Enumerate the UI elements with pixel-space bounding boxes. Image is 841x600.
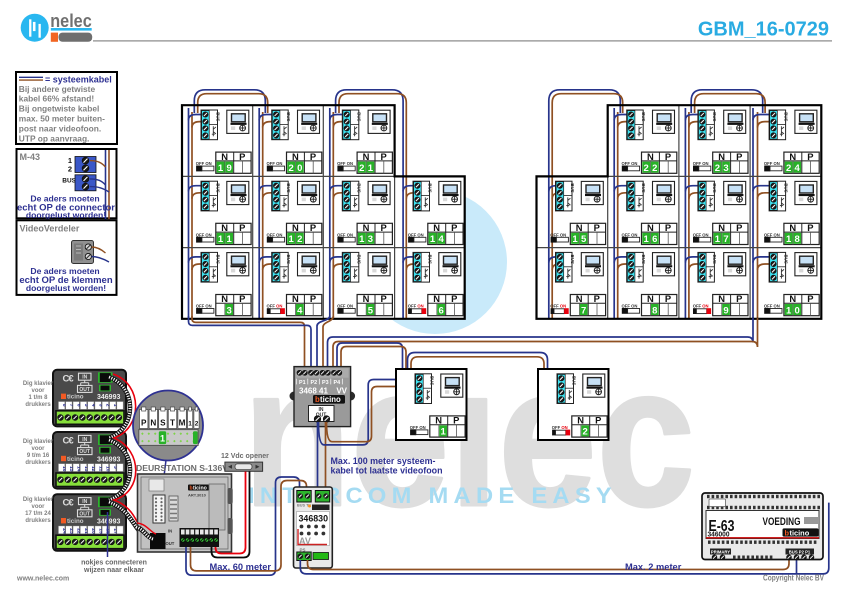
svg-text:OUT: OUT	[79, 387, 90, 393]
svg-text:Bij andere getwiste: Bij andere getwiste	[19, 84, 96, 94]
svg-text:ON: ON	[276, 304, 282, 309]
svg-text:P: P	[453, 415, 459, 426]
svg-text:nokjes connecteren: nokjes connecteren	[81, 560, 147, 567]
svg-text:9: 9	[723, 305, 728, 316]
svg-text:N: N	[433, 222, 440, 233]
svg-text:ON: ON	[205, 161, 211, 166]
svg-text:BUS: BUS	[641, 255, 646, 264]
svg-text:ticino: ticino	[67, 394, 84, 401]
svg-text:1: 1	[440, 427, 446, 438]
svg-text:GBM_16-0729: GBM_16-0729	[698, 19, 829, 41]
svg-text:ticino: ticino	[320, 395, 341, 404]
svg-text:Dig klavier: Dig klavier	[23, 497, 54, 503]
svg-text:N: N	[433, 293, 440, 304]
svg-text:1: 1	[188, 421, 192, 428]
svg-text:ON: ON	[702, 232, 708, 237]
svg-text:N: N	[221, 222, 228, 233]
svg-text:N: N	[718, 151, 725, 162]
svg-text:N: N	[363, 222, 370, 233]
svg-text:OFF: OFF	[267, 161, 276, 166]
svg-text:Dig klavier: Dig klavier	[23, 439, 54, 445]
svg-text:VideoVerdeler: VideoVerdeler	[20, 224, 80, 234]
svg-text:N: N	[292, 293, 299, 304]
svg-text:4: 4	[795, 163, 801, 174]
svg-text:OFF: OFF	[337, 232, 346, 237]
svg-text:BUS: BUS	[712, 183, 717, 192]
svg-text:P: P	[807, 222, 813, 233]
svg-text:1: 1	[644, 234, 650, 245]
svg-text:OFF: OFF	[622, 304, 631, 309]
svg-text:Max. 100 meter systeem-: Max. 100 meter systeem-	[331, 456, 436, 466]
svg-text:1: 1	[786, 234, 792, 245]
svg-text:P: P	[141, 419, 147, 428]
svg-text:0: 0	[297, 163, 302, 174]
svg-text:OFF: OFF	[550, 304, 559, 309]
svg-text:8: 8	[795, 234, 800, 245]
svg-text:P1: P1	[299, 380, 306, 386]
svg-text:BUS: BUS	[286, 255, 291, 264]
svg-text:N: N	[577, 415, 584, 426]
svg-text:2: 2	[359, 163, 364, 174]
svg-text:BUS: BUS	[641, 112, 646, 121]
svg-text:3: 3	[723, 163, 728, 174]
svg-text:ON: ON	[631, 232, 637, 237]
svg-text:P: P	[807, 151, 813, 162]
svg-text:346830: 346830	[299, 514, 329, 525]
svg-text:P: P	[239, 293, 245, 304]
svg-text:9: 9	[226, 163, 231, 174]
svg-text:wijzen naar elkaar: wijzen naar elkaar	[83, 567, 144, 574]
svg-text:OFF: OFF	[550, 232, 559, 237]
svg-text:4: 4	[438, 234, 444, 245]
svg-text:346993: 346993	[97, 519, 120, 526]
svg-text:N: N	[647, 151, 654, 162]
svg-text:P: P	[736, 151, 742, 162]
svg-text:N: N	[221, 151, 228, 162]
svg-text:P: P	[594, 293, 600, 304]
svg-text:ON: ON	[774, 304, 780, 309]
svg-text:1: 1	[572, 234, 578, 245]
svg-text:P: P	[380, 151, 386, 162]
svg-text:BUS: BUS	[215, 112, 220, 121]
svg-text:P: P	[239, 151, 245, 162]
svg-text:N: N	[789, 293, 796, 304]
svg-text:6: 6	[438, 305, 443, 316]
svg-text:OFF: OFF	[196, 232, 205, 237]
svg-text:17 t/m 24: 17 t/m 24	[25, 511, 51, 517]
svg-text:Max. 60 meter: Max. 60 meter	[210, 562, 272, 572]
svg-text:N: N	[150, 419, 156, 428]
svg-text:OFF: OFF	[196, 161, 205, 166]
svg-text:BUS: BUS	[783, 112, 788, 121]
svg-text:ON: ON	[774, 232, 780, 237]
svg-text:OFF: OFF	[267, 232, 276, 237]
svg-text:BUS: BUS	[429, 376, 434, 385]
svg-text:ON: ON	[276, 161, 282, 166]
svg-text:OFF: OFF	[552, 425, 561, 430]
svg-text:OFF: OFF	[196, 304, 205, 309]
svg-text:OFF: OFF	[410, 425, 419, 430]
svg-text:N: N	[292, 151, 299, 162]
svg-text:ticino: ticino	[193, 486, 207, 492]
svg-text:ON: ON	[774, 161, 780, 166]
svg-text:ON: ON	[702, 304, 708, 309]
svg-text:OFF: OFF	[337, 304, 346, 309]
svg-text:N: N	[576, 293, 583, 304]
svg-text:P: P	[665, 222, 671, 233]
svg-text:P: P	[310, 293, 316, 304]
svg-text:1: 1	[715, 234, 721, 245]
svg-text:N: N	[363, 151, 370, 162]
svg-text:P: P	[807, 293, 813, 304]
svg-text:max. 50 meter buiten-: max. 50 meter buiten-	[19, 114, 105, 124]
svg-text:VOEDING: VOEDING	[763, 516, 801, 528]
svg-text:BUS: BUS	[641, 183, 646, 192]
svg-text:BUS P2 P1: BUS P2 P1	[789, 549, 811, 554]
svg-text:ON: ON	[205, 232, 211, 237]
svg-text:1: 1	[218, 163, 224, 174]
svg-text:OUT: OUT	[79, 511, 90, 517]
svg-text:2: 2	[786, 163, 791, 174]
svg-text:OUT: OUT	[166, 541, 175, 546]
svg-text:OFF: OFF	[693, 232, 702, 237]
svg-text:P3: P3	[322, 380, 329, 386]
svg-text:C€: C€	[63, 498, 75, 509]
svg-text:OFF: OFF	[764, 304, 773, 309]
svg-text:2: 2	[68, 165, 72, 174]
svg-text:N: N	[363, 293, 370, 304]
svg-text:P: P	[451, 222, 457, 233]
svg-text:post naar videofoon.: post naar videofoon.	[19, 123, 101, 133]
svg-text:UTP op aanvraag.: UTP op aanvraag.	[19, 133, 90, 143]
svg-text:8: 8	[652, 305, 657, 316]
svg-text:P: P	[736, 222, 742, 233]
svg-text:BUS: BUS	[427, 183, 432, 192]
svg-text:1: 1	[430, 234, 436, 245]
svg-text:M: M	[179, 419, 186, 428]
svg-text:P4: P4	[334, 380, 341, 386]
svg-text:ON: ON	[561, 425, 567, 430]
svg-text:7: 7	[723, 234, 728, 245]
svg-text:ticino: ticino	[67, 456, 84, 463]
svg-text:P: P	[736, 293, 742, 304]
svg-text:5: 5	[581, 234, 587, 245]
svg-text:AV: AV	[299, 536, 311, 546]
svg-text:Copyright Nelec BV: Copyright Nelec BV	[763, 574, 825, 583]
svg-text:P: P	[310, 151, 316, 162]
svg-text:ON: ON	[702, 161, 708, 166]
svg-text:ticino: ticino	[790, 528, 810, 537]
svg-text:BUS: BUS	[570, 183, 575, 192]
svg-text:5: 5	[368, 305, 374, 316]
svg-text:BUS: BUS	[286, 183, 291, 192]
svg-text:N: N	[576, 222, 583, 233]
svg-text:P: P	[665, 151, 671, 162]
svg-text:2: 2	[652, 163, 657, 174]
svg-text:BUS: BUS	[570, 255, 575, 264]
svg-text:6: 6	[652, 234, 657, 245]
svg-text:1: 1	[289, 234, 295, 245]
svg-text:OFF: OFF	[408, 304, 417, 309]
svg-text:N: N	[789, 151, 796, 162]
svg-text:2: 2	[582, 427, 587, 438]
svg-text:P: P	[451, 293, 457, 304]
svg-text:ART.3010: ART.3010	[188, 493, 207, 498]
svg-text:BUS: BUS	[357, 255, 362, 264]
svg-text:P: P	[239, 222, 245, 233]
svg-text:N: N	[718, 222, 725, 233]
svg-text:ON: ON	[417, 232, 423, 237]
svg-text:1: 1	[226, 234, 232, 245]
svg-text:ON: ON	[417, 304, 423, 309]
svg-text:BUS: BUS	[357, 112, 362, 121]
svg-text:N: N	[435, 415, 442, 426]
svg-text:N: N	[718, 293, 725, 304]
svg-text:2: 2	[644, 163, 649, 174]
svg-text:IN: IN	[82, 375, 87, 381]
svg-text:voor: voor	[31, 388, 45, 394]
svg-text:C€: C€	[63, 373, 75, 384]
svg-text:kabel 66% afstand!: kabel 66% afstand!	[19, 94, 94, 104]
svg-text:OFF: OFF	[622, 161, 631, 166]
svg-text:2: 2	[715, 163, 720, 174]
svg-text:OFF: OFF	[267, 304, 276, 309]
svg-text:BUS: BUS	[712, 255, 717, 264]
svg-text:2: 2	[297, 234, 302, 245]
svg-text:1: 1	[786, 305, 792, 316]
svg-text:ON: ON	[347, 232, 353, 237]
svg-text:N: N	[647, 293, 654, 304]
svg-text:P: P	[380, 293, 386, 304]
svg-text:ticino: ticino	[67, 518, 84, 525]
svg-text:www.nelec.com: www.nelec.com	[16, 576, 69, 583]
svg-text:BUS: BUS	[783, 255, 788, 264]
svg-text:N: N	[789, 222, 796, 233]
svg-text:3: 3	[226, 305, 231, 316]
svg-text:OUT: OUT	[79, 449, 90, 455]
svg-text:P: P	[665, 293, 671, 304]
svg-text:Bij ongetwiste kabel: Bij ongetwiste kabel	[19, 104, 100, 114]
svg-text:ON: ON	[631, 304, 637, 309]
svg-text:M-43: M-43	[20, 152, 41, 162]
svg-text:ON: ON	[560, 232, 566, 237]
svg-text:346993: 346993	[97, 394, 120, 401]
svg-text:2: 2	[289, 163, 294, 174]
svg-text:drukkers: drukkers	[25, 402, 51, 408]
svg-text:P: P	[595, 415, 601, 426]
svg-text:ON: ON	[276, 232, 282, 237]
svg-text:doorgelust worden!: doorgelust worden!	[26, 283, 106, 293]
svg-text:doorgelust worden!: doorgelust worden!	[26, 210, 106, 220]
svg-text:BUS: BUS	[215, 255, 220, 264]
svg-text:1 t/m 8: 1 t/m 8	[28, 395, 48, 401]
svg-text:OFF: OFF	[337, 161, 346, 166]
svg-text:2: 2	[195, 421, 199, 428]
svg-text:S: S	[160, 419, 166, 428]
svg-text:IN: IN	[168, 529, 172, 534]
svg-text:346000: 346000	[708, 529, 730, 538]
svg-text:4: 4	[297, 305, 303, 316]
svg-text:OFF: OFF	[693, 304, 702, 309]
svg-text:ON: ON	[347, 304, 353, 309]
svg-text:3: 3	[368, 234, 373, 245]
svg-text:ON: ON	[419, 425, 425, 430]
svg-text:BUS: BUS	[62, 178, 76, 185]
svg-text:12 Vdc opener: 12 Vdc opener	[221, 453, 269, 460]
svg-text:ON: ON	[631, 161, 637, 166]
svg-text:BUS: BUS	[783, 183, 788, 192]
svg-text:IN: IN	[82, 437, 87, 443]
svg-text:N: N	[292, 222, 299, 233]
svg-text:P: P	[310, 222, 316, 233]
svg-text:OFF: OFF	[622, 232, 631, 237]
svg-text:1: 1	[218, 234, 224, 245]
svg-text:P2: P2	[311, 380, 318, 386]
svg-text:P: P	[380, 222, 386, 233]
svg-text:kabel tot laatste videofoon: kabel tot laatste videofoon	[331, 466, 443, 476]
svg-text:OFF: OFF	[764, 232, 773, 237]
svg-text:BUS: BUS	[571, 376, 576, 385]
svg-text:7: 7	[581, 305, 586, 316]
svg-text:drukkers: drukkers	[25, 460, 51, 466]
svg-text:N: N	[221, 293, 228, 304]
svg-text:voor: voor	[31, 504, 45, 510]
svg-text:1: 1	[359, 234, 365, 245]
svg-text:BUS: BUS	[215, 183, 220, 192]
svg-text:BUS: BUS	[712, 112, 717, 121]
svg-text:9 t/m 16: 9 t/m 16	[27, 453, 50, 459]
svg-text:ON: ON	[205, 304, 211, 309]
svg-text:DEURSTATION S-136V: DEURSTATION S-136V	[136, 463, 228, 473]
svg-text:ON: ON	[560, 304, 566, 309]
svg-text:OFF: OFF	[693, 161, 702, 166]
svg-text:IN: IN	[82, 499, 87, 505]
svg-text:Max. 2 meter: Max. 2 meter	[625, 562, 682, 572]
svg-text:ON: ON	[347, 161, 353, 166]
svg-text:drukkers: drukkers	[25, 518, 51, 524]
svg-text:BUS: BUS	[427, 255, 432, 264]
svg-text:P: P	[594, 222, 600, 233]
svg-text:PRIMARY: PRIMARY	[711, 549, 730, 554]
svg-text:0: 0	[795, 305, 800, 316]
svg-text:BUS: BUS	[357, 183, 362, 192]
svg-text:1: 1	[368, 163, 374, 174]
svg-text:346993: 346993	[97, 456, 120, 463]
svg-text:C€: C€	[63, 436, 75, 447]
svg-text:Dig klavier: Dig klavier	[23, 381, 54, 387]
svg-text:OFF: OFF	[764, 161, 773, 166]
svg-text:BUS: BUS	[286, 112, 291, 121]
svg-text:T: T	[170, 419, 175, 428]
svg-text:1: 1	[160, 434, 165, 444]
svg-text:N: N	[647, 222, 654, 233]
svg-text:OFF: OFF	[408, 232, 417, 237]
svg-text:voor: voor	[31, 446, 45, 452]
